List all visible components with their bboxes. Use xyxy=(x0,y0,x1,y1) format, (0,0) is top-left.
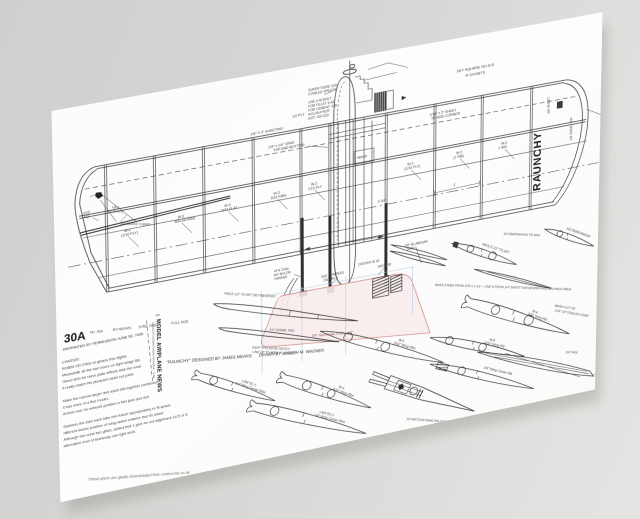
svg-text:RAULS 1/2" TO APT: RAULS 1/2" TO APT xyxy=(481,242,510,255)
svg-text:"RAUNCHY" DESIGNED BY JAMES M: "RAUNCHY" DESIGNED BY JAMES MEARS DRAWN … xyxy=(166,348,325,365)
svg-text:MAKE 8 RIBS FROM 3/32 x 2-1/2: MAKE 8 RIBS FROM 3/32 x 2-1/2 — AND 8 FR… xyxy=(435,283,573,291)
svg-text:(1 RIB): (1 RIB) xyxy=(453,154,464,160)
svg-text:SQ.: SQ. xyxy=(84,214,90,219)
svg-text:FULL SIZE: FULL SIZE xyxy=(171,320,189,326)
svg-text:3/8 SHEET: 3/8 SHEET xyxy=(547,95,551,114)
svg-text:PIECE 1/2" TO APT (NO RIB EDGE: PIECE 1/2" TO APT (NO RIB EDGE) xyxy=(224,292,276,298)
svg-text:WASH: WASH xyxy=(357,154,368,160)
svg-text:2-3/4": 2-3/4" xyxy=(378,198,388,204)
svg-text:MODEL AIRPLANE NEWS: MODEL AIRPLANE NEWS xyxy=(155,319,162,393)
svg-text:TM: TM xyxy=(155,313,160,318)
svg-text:NO EMPENNAGE: NO EMPENNAGE xyxy=(566,227,592,239)
svg-text:1/8 SHEET TIP: 1/8 SHEET TIP xyxy=(569,116,573,141)
svg-text:1/4" Wing Center Rib: 1/4" Wing Center Rib xyxy=(483,366,513,376)
svg-text:3/32" Wing Rib: 3/32" Wing Rib xyxy=(484,341,506,349)
svg-text:3/32" Wing Rib: 3/32" Wing Rib xyxy=(527,312,548,322)
svg-text:No. 30A: No. 30A xyxy=(90,329,104,334)
svg-text:3/4" thick: 3/4" thick xyxy=(565,351,578,355)
svg-text:1 RIB: 1 RIB xyxy=(498,145,507,150)
svg-text:CENTER W 16: CENTER W 16 xyxy=(358,259,379,267)
svg-text:NO EMPENNAGE TO MAX: NO EMPENNAGE TO MAX xyxy=(503,232,541,237)
svg-text:1/2 PLY: 1/2 PLY xyxy=(292,113,305,119)
svg-text:1': 1' xyxy=(453,183,456,187)
svg-text:RAUNCHY: RAUNCHY xyxy=(531,131,544,192)
svg-text:BY MEARS: BY MEARS xyxy=(113,326,132,332)
